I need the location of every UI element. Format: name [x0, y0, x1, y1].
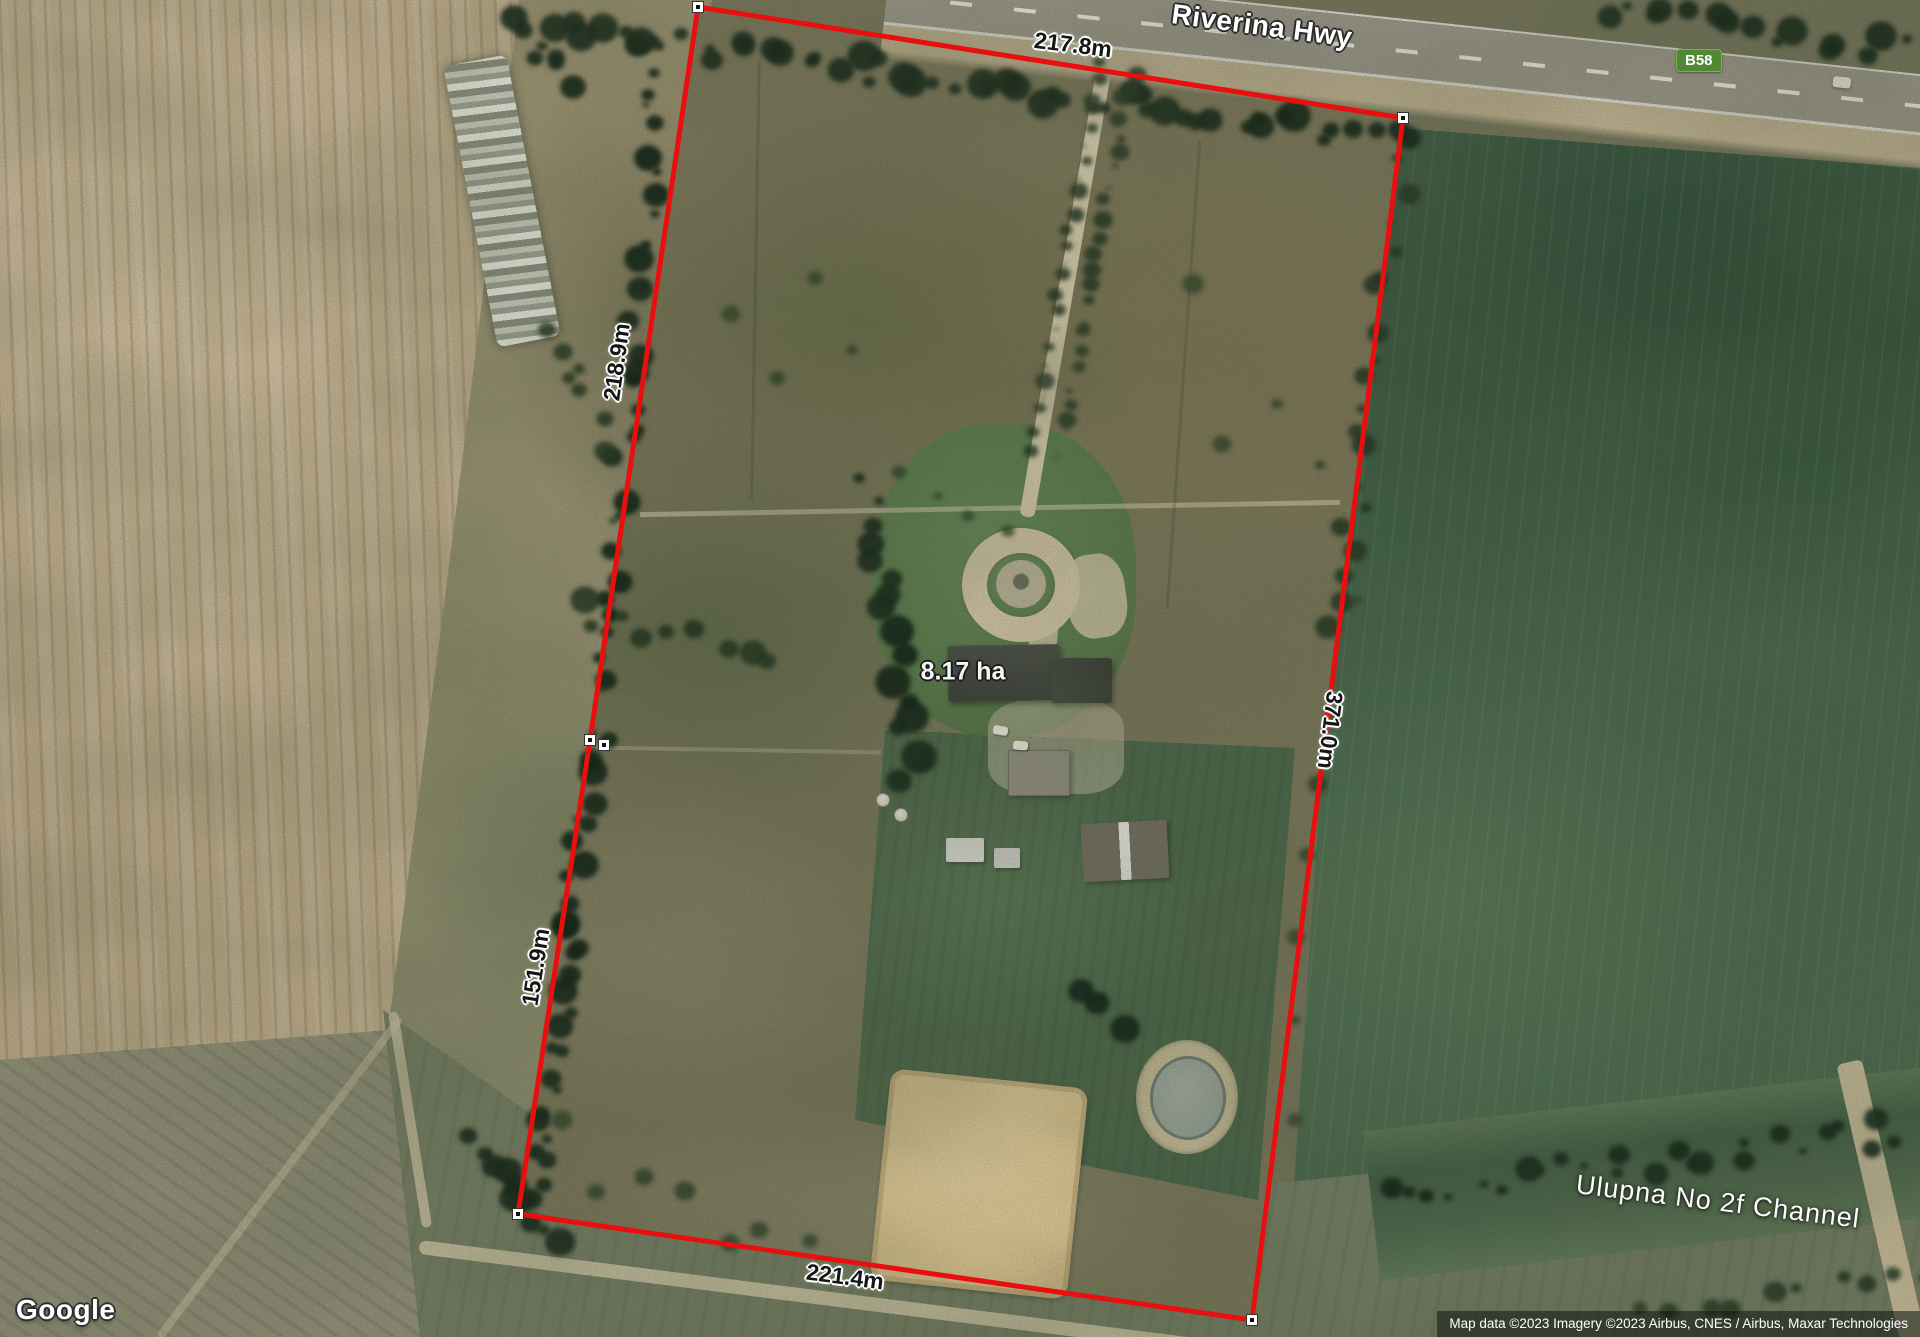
- vertex-marker-center: [696, 5, 700, 9]
- area-label: 8.17 ha: [921, 658, 1006, 687]
- route-badge-b58: B58: [1676, 49, 1722, 72]
- vertex-marker-center: [588, 738, 592, 742]
- google-logo[interactable]: Google: [16, 1294, 115, 1326]
- vertex-marker-center: [1401, 116, 1405, 120]
- vertex-marker-center: [602, 743, 606, 747]
- vertex-marker-center: [516, 1212, 520, 1216]
- attribution-bar: Map data ©2023 Imagery ©2023 Airbus, CNE…: [1437, 1311, 1920, 1337]
- satellite-map-view[interactable]: 217.8m 218.9m 151.9m 371.0m 221.4m 8.17 …: [0, 0, 1920, 1337]
- vertex-marker-center: [1250, 1318, 1254, 1322]
